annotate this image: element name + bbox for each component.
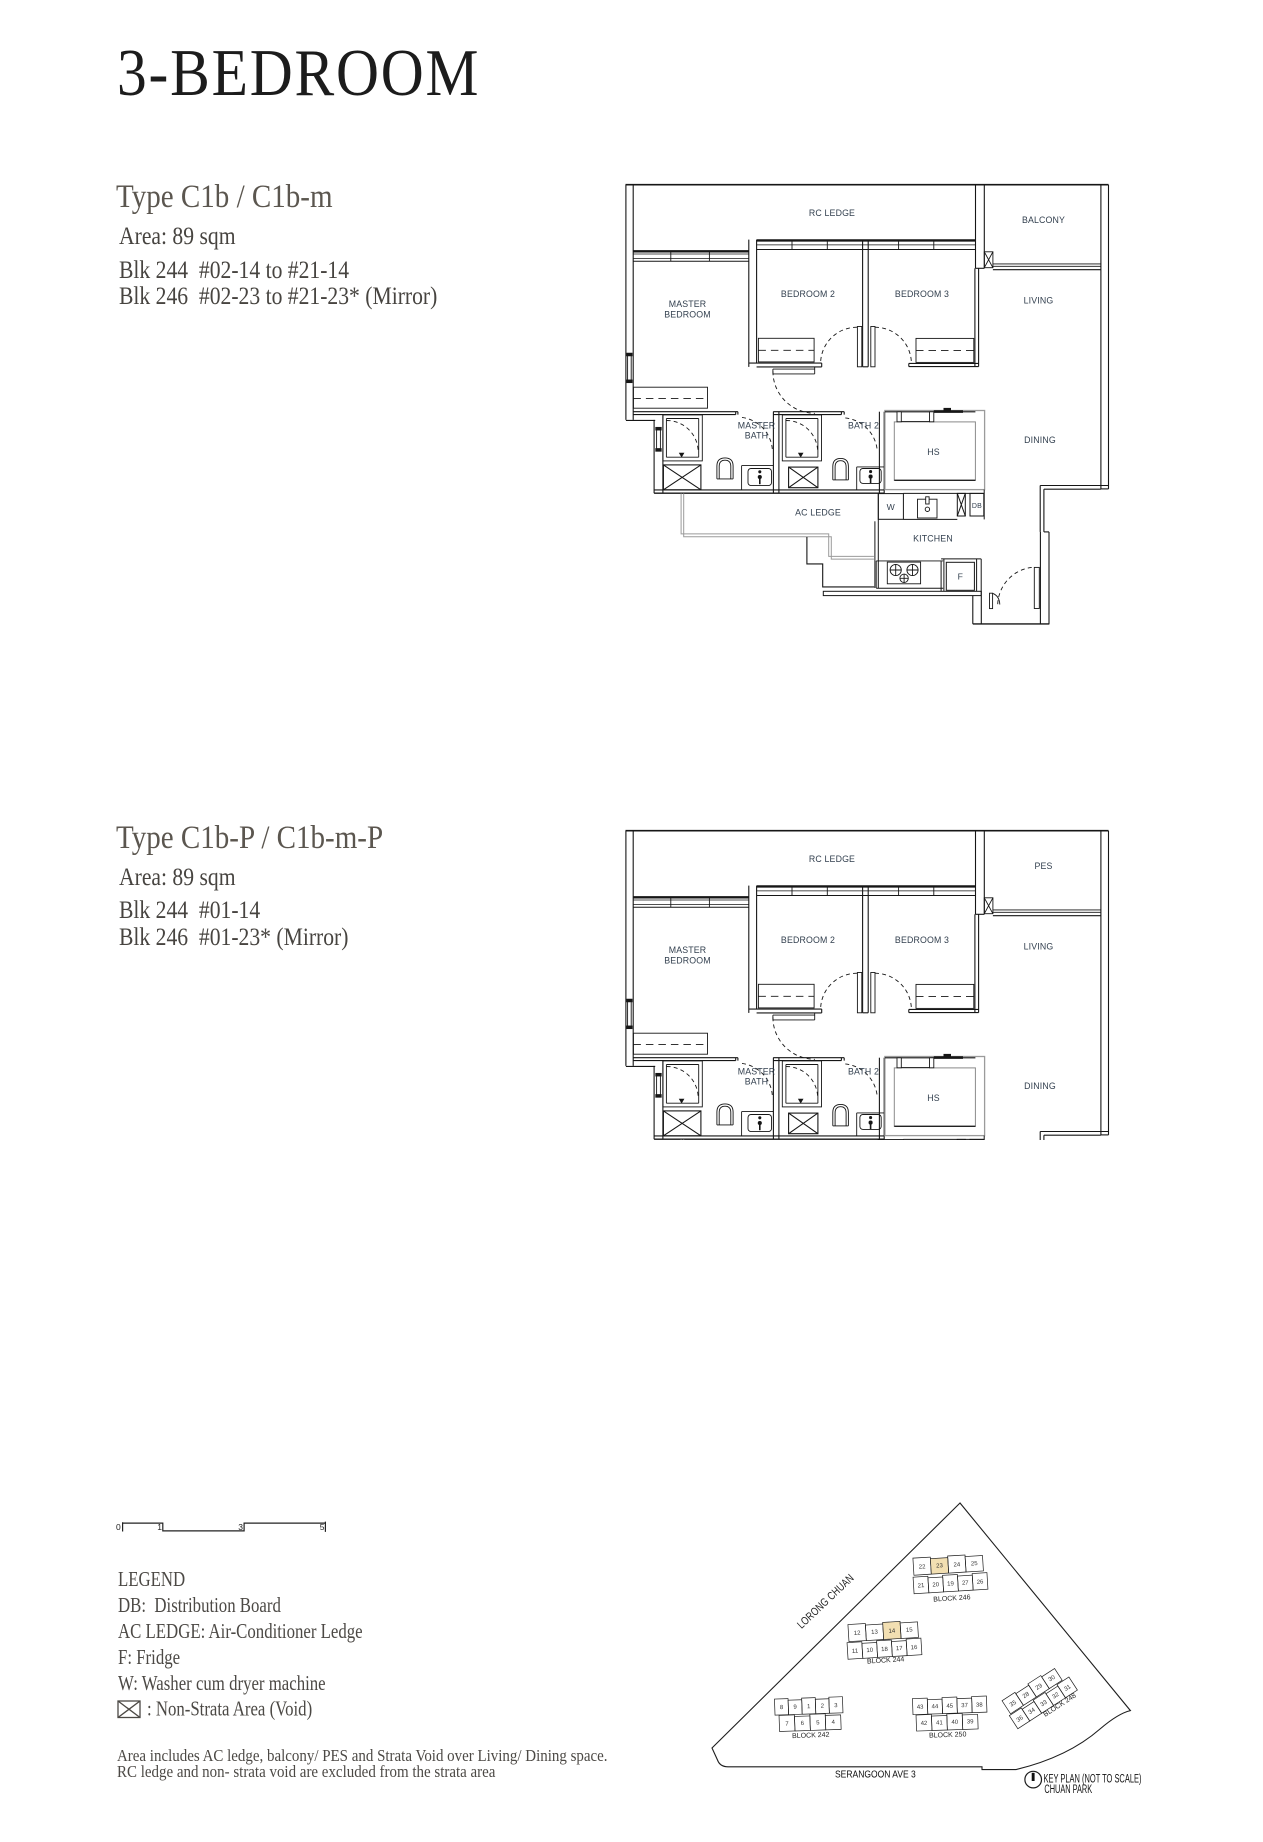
svg-text:1: 1 bbox=[157, 1522, 162, 1532]
svg-text:BEDROOM 2: BEDROOM 2 bbox=[781, 289, 835, 299]
svg-text:39: 39 bbox=[967, 1719, 975, 1725]
svg-text:32: 32 bbox=[1052, 1692, 1061, 1701]
svg-text:0: 0 bbox=[116, 1522, 121, 1532]
svg-text:21: 21 bbox=[918, 1583, 926, 1589]
svg-text:BEDROOM 2: BEDROOM 2 bbox=[781, 935, 835, 945]
svg-text:29: 29 bbox=[1035, 1683, 1044, 1692]
svg-text:RC LEDGE: RC LEDGE bbox=[809, 208, 855, 218]
svg-text:5: 5 bbox=[816, 1720, 820, 1726]
svg-text:17: 17 bbox=[896, 1646, 904, 1652]
svg-text:BEDROOM: BEDROOM bbox=[664, 310, 711, 320]
svg-text:3: 3 bbox=[238, 1522, 243, 1532]
svg-text:DINING: DINING bbox=[1024, 1081, 1056, 1091]
svg-text:11: 11 bbox=[852, 1649, 859, 1655]
svg-text:2: 2 bbox=[821, 1704, 825, 1710]
svg-text:BATH: BATH bbox=[745, 431, 768, 441]
svg-text:AC LEDGE: AC LEDGE bbox=[795, 508, 841, 518]
svg-text:22: 22 bbox=[919, 1564, 927, 1570]
svg-text:KITCHEN: KITCHEN bbox=[913, 534, 953, 544]
svg-text:BEDROOM 3: BEDROOM 3 bbox=[895, 289, 949, 299]
svg-text:BEDROOM: BEDROOM bbox=[664, 956, 711, 966]
svg-text:33: 33 bbox=[1040, 1699, 1049, 1708]
svg-text:18: 18 bbox=[881, 1647, 889, 1653]
svg-text:3: 3 bbox=[834, 1703, 838, 1709]
svg-text:BATH: BATH bbox=[745, 1077, 768, 1087]
svg-text:MASTER: MASTER bbox=[669, 945, 707, 955]
svg-text:BATH 2: BATH 2 bbox=[848, 1067, 879, 1077]
svg-text:26: 26 bbox=[977, 1579, 985, 1585]
svg-text:40: 40 bbox=[951, 1720, 959, 1726]
svg-text:35: 35 bbox=[1009, 1699, 1018, 1708]
svg-text:19: 19 bbox=[947, 1581, 955, 1587]
svg-text:: Non-Strata Area (Void): : Non-Strata Area (Void) bbox=[147, 1699, 312, 1721]
svg-text:16: 16 bbox=[911, 1645, 919, 1651]
svg-text:31: 31 bbox=[1063, 1684, 1072, 1693]
svg-text:HS: HS bbox=[927, 1093, 940, 1103]
svg-text:BLOCK 250: BLOCK 250 bbox=[929, 1731, 967, 1739]
svg-text:BLOCK 242: BLOCK 242 bbox=[792, 1732, 830, 1740]
svg-text:38: 38 bbox=[976, 1703, 984, 1709]
svg-text:1: 1 bbox=[807, 1704, 811, 1710]
svg-text:F: F bbox=[958, 572, 963, 582]
svg-text:BLOCK 244: BLOCK 244 bbox=[867, 1656, 905, 1665]
svg-text:RC LEDGE: RC LEDGE bbox=[809, 854, 855, 864]
svg-text:MASTER: MASTER bbox=[669, 299, 707, 309]
svg-text:43: 43 bbox=[917, 1705, 925, 1711]
svg-text:8: 8 bbox=[780, 1705, 784, 1711]
svg-text:CHUAN PARK: CHUAN PARK bbox=[1044, 1783, 1092, 1796]
svg-text:MASTER: MASTER bbox=[738, 1067, 776, 1077]
svg-text:42: 42 bbox=[921, 1721, 929, 1727]
svg-text:44: 44 bbox=[932, 1704, 940, 1710]
svg-text:7: 7 bbox=[785, 1721, 789, 1727]
svg-text:9: 9 bbox=[793, 1705, 797, 1711]
svg-text:27: 27 bbox=[962, 1580, 970, 1586]
svg-text:HS: HS bbox=[927, 447, 940, 457]
svg-text:37: 37 bbox=[961, 1703, 969, 1709]
svg-text:LIVING: LIVING bbox=[1024, 295, 1054, 305]
svg-text:MASTER: MASTER bbox=[738, 421, 776, 431]
svg-text:LORONG CHUAN: LORONG CHUAN bbox=[795, 1572, 856, 1631]
svg-text:5: 5 bbox=[320, 1522, 325, 1532]
svg-text:BEDROOM 3: BEDROOM 3 bbox=[895, 935, 949, 945]
svg-text:12: 12 bbox=[854, 1631, 862, 1637]
svg-text:4: 4 bbox=[831, 1720, 835, 1726]
svg-text:10: 10 bbox=[866, 1648, 874, 1654]
svg-text:25: 25 bbox=[971, 1561, 979, 1567]
svg-text:45: 45 bbox=[946, 1704, 954, 1710]
svg-text:6: 6 bbox=[801, 1721, 805, 1727]
svg-text:30: 30 bbox=[1048, 1674, 1057, 1683]
svg-text:BALCONY: BALCONY bbox=[1022, 215, 1065, 225]
svg-text:20: 20 bbox=[932, 1582, 940, 1588]
svg-text:BLOCK 246: BLOCK 246 bbox=[933, 1594, 971, 1603]
svg-text:24: 24 bbox=[953, 1562, 961, 1568]
svg-text:41: 41 bbox=[936, 1720, 944, 1726]
svg-text:BATH 2: BATH 2 bbox=[848, 421, 879, 431]
svg-text:SERANGOON AVE 3: SERANGOON AVE 3 bbox=[835, 1769, 916, 1781]
svg-text:36: 36 bbox=[1016, 1715, 1025, 1724]
svg-text:LIVING: LIVING bbox=[1024, 941, 1054, 951]
svg-text:W: W bbox=[887, 502, 896, 512]
svg-text:34: 34 bbox=[1028, 1707, 1037, 1716]
svg-text:13: 13 bbox=[871, 1630, 879, 1636]
svg-text:DINING: DINING bbox=[1024, 435, 1056, 445]
svg-text:23: 23 bbox=[936, 1563, 944, 1569]
svg-text:28: 28 bbox=[1022, 1691, 1031, 1700]
svg-text:15: 15 bbox=[906, 1627, 914, 1633]
svg-text:14: 14 bbox=[888, 1628, 896, 1634]
svg-text:PES: PES bbox=[1034, 861, 1052, 871]
svg-text:DB: DB bbox=[972, 503, 982, 510]
